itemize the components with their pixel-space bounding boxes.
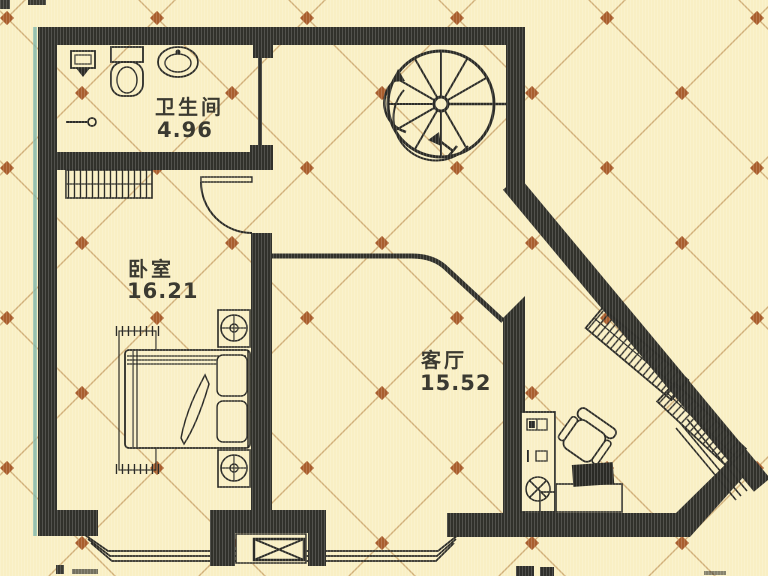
bedroom-living-divider-wall — [251, 233, 272, 513]
shaft — [210, 510, 326, 566]
bathroom-east-wall-stub — [253, 45, 273, 58]
double-bed-icon — [125, 350, 250, 448]
bedroom-bottom-wall — [38, 510, 98, 536]
wardrobe-icon — [66, 170, 152, 198]
bedroom-name-label: 卧室 — [128, 259, 174, 279]
desk-icon — [556, 484, 622, 512]
bathroom-south-wall — [57, 152, 254, 170]
shaft-right-pillar — [308, 510, 326, 566]
bathroom-east-wall-bottom — [250, 145, 273, 170]
shaft-left-pillar — [210, 510, 235, 566]
living-room-area-label: 15.52 — [420, 373, 491, 394]
scan-fringe — [33, 27, 37, 536]
bathroom-name-label: 卫生间 — [155, 97, 224, 117]
floor-plan-drawing — [0, 0, 768, 576]
sliding-door-icon — [258, 57, 262, 147]
left-wall — [38, 27, 57, 536]
cabinet-icon — [521, 412, 555, 512]
bathroom-area-label: 4.96 — [157, 120, 213, 141]
floor-plan: 卫生间 4.96 卧室 16.21 客厅 15.52 — [0, 0, 768, 576]
pillow-icon — [217, 401, 247, 442]
right-upper-wall — [506, 27, 525, 193]
monitor-icon — [572, 463, 613, 487]
living-room-name-label: 客厅 — [421, 350, 467, 370]
top-wall — [38, 27, 525, 45]
pillow-icon — [217, 355, 247, 396]
diamond-lattice-pattern — [0, 0, 768, 576]
bedroom-area-label: 16.21 — [127, 281, 198, 302]
